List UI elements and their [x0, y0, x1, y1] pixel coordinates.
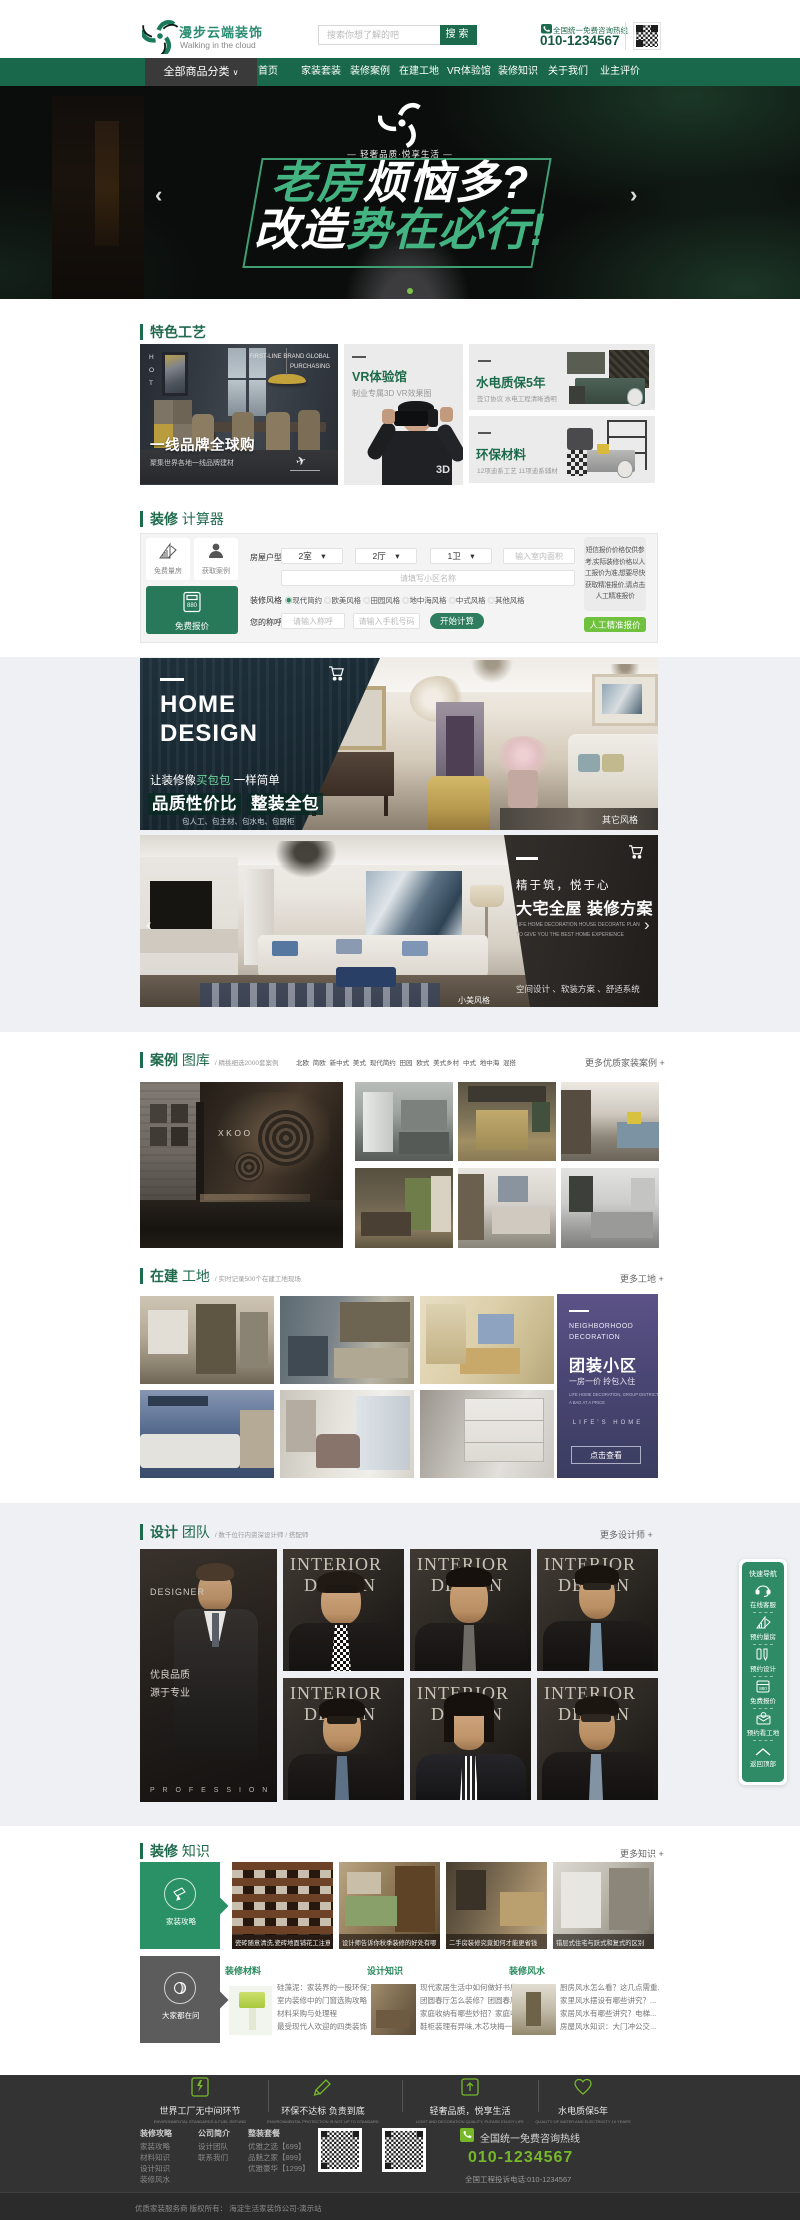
svg-text:880: 880: [187, 603, 198, 609]
svg-text:880: 880: [759, 1686, 767, 1691]
